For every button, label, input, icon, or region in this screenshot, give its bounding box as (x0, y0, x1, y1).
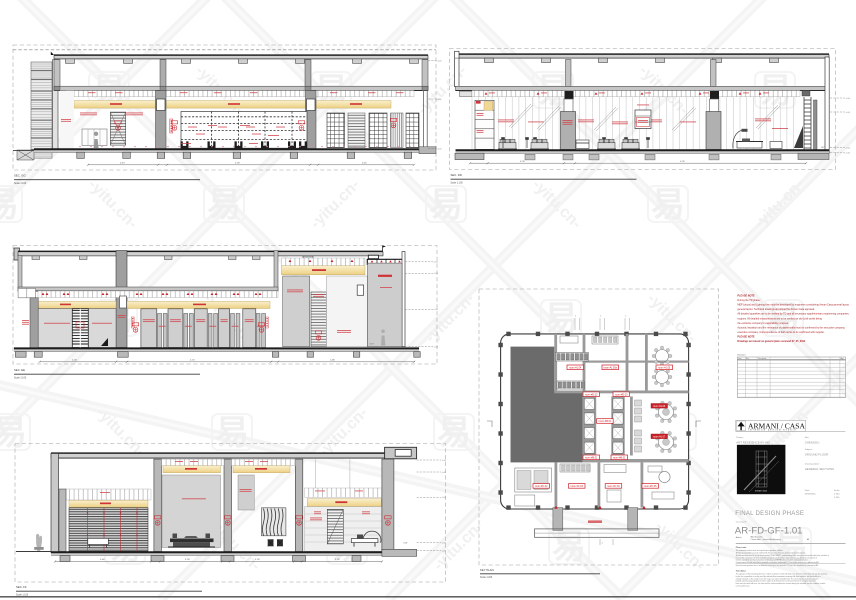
svg-text:Acoustic insulation and fire r: Acoustic insulation and fire resistance … (737, 326, 845, 329)
svg-text:+0.00: +0.00 (442, 460, 446, 462)
svg-text:+0.00: +0.00 (434, 262, 438, 264)
svg-text:1:100: 1:100 (834, 494, 840, 496)
svg-text:Scale 1:200: Scale 1:200 (480, 577, 493, 579)
svg-text:4.139: 4.139 (235, 163, 240, 165)
svg-text:4: 4 (625, 316, 626, 318)
svg-text:room #D.03: room #D.03 (615, 393, 628, 396)
svg-text:4.170: 4.170 (680, 161, 685, 163)
svg-text:4.170: 4.170 (255, 559, 260, 561)
svg-text:AR-FD-GF-1.01: AR-FD-GF-1.01 (735, 525, 803, 536)
svg-text:4: 4 (600, 316, 601, 318)
svg-text:易: 易 (544, 300, 578, 338)
svg-text:FINAL DESIGN PHASE: FINAL DESIGN PHASE (735, 510, 804, 517)
svg-text:During the TD phase:: During the TD phase: (737, 299, 760, 302)
svg-text:+0.00: +0.00 (437, 99, 441, 101)
svg-text:Scale 1:100: Scale 1:100 (14, 378, 27, 380)
svg-text:KEY PLAN: KEY PLAN (480, 568, 494, 572)
svg-text:room #1.05: room #1.05 (658, 366, 671, 369)
svg-text:05/09/2015: 05/09/2015 (805, 494, 817, 496)
svg-text:Scale 1:100: Scale 1:100 (14, 183, 27, 185)
svg-text:GROUND FLOOR: GROUND FLOOR (805, 452, 829, 456)
svg-text:4.100: 4.100 (100, 559, 105, 561)
svg-text:4.170: 4.170 (520, 161, 525, 163)
svg-text:易: 易 (0, 186, 19, 224)
svg-text:Date:: Date: (805, 489, 811, 492)
svg-text:PLEASE NOTE: PLEASE NOTE (737, 295, 755, 298)
svg-text:+0.00: +0.00 (437, 60, 441, 62)
svg-text:易: 易 (207, 186, 241, 224)
svg-text:1.330: 1.330 (330, 360, 335, 362)
svg-text:Translation: Translation (736, 570, 747, 573)
svg-text:1:200: 1:200 (834, 497, 840, 499)
svg-text:易: 易 (651, 186, 685, 224)
svg-text:room #C.02: room #C.02 (535, 485, 548, 488)
svg-text:SEC. GG: SEC. GG (14, 174, 26, 178)
svg-text:SEC. DD: SEC. DD (451, 173, 462, 177)
svg-text:4.170: 4.170 (335, 559, 340, 561)
svg-text:Scale:: Scale: (834, 490, 840, 492)
svg-text:engines. All detailed measurem: engines. All detailed measurements are t… (737, 317, 822, 320)
svg-text:App.: App. (841, 357, 845, 360)
svg-text:4.225: 4.225 (362, 163, 367, 165)
svg-text:易: 易 (215, 414, 249, 452)
svg-text:4.171: 4.171 (190, 360, 195, 362)
svg-text:Author:: Author: (736, 536, 743, 539)
svg-text:+0.00: +0.00 (442, 550, 446, 552)
svg-text:易: 易 (552, 528, 586, 566)
svg-text:+0.00: +0.00 (442, 497, 446, 499)
svg-text:Drawing N°: Drawing N° (736, 520, 747, 523)
svg-text:room #1.07: room #1.07 (653, 435, 666, 438)
svg-text:CHENGDU: CHENGDU (805, 440, 820, 444)
svg-text:+0.00: +0.00 (846, 153, 850, 155)
svg-text:executive company. Corresponde: executive company. Correspondence of bot… (737, 331, 825, 334)
svg-text:+0.00: +0.00 (846, 98, 850, 100)
svg-text:room #B.01: room #B.01 (585, 456, 598, 459)
svg-text:易: 易 (437, 414, 471, 452)
svg-text:+0.00: +0.00 (434, 309, 438, 311)
svg-text:room #C.03: room #C.03 (570, 485, 583, 488)
svg-text:+0.00: +0.00 (434, 347, 438, 349)
svg-text:Project:: Project: (736, 436, 744, 439)
svg-text:MEP (ducts) and Lighting Arm m: MEP (ducts) and Lighting Arm must be dev… (737, 304, 849, 307)
svg-text:Revision:: Revision: (737, 355, 746, 357)
svg-text:+0.00: +0.00 (442, 542, 446, 544)
svg-text:4.170: 4.170 (185, 559, 190, 561)
svg-text:Site:: Site: (805, 436, 810, 439)
svg-text:room #C.04: room #C.04 (607, 485, 620, 488)
svg-text:Rev.: Rev. (746, 358, 750, 360)
svg-text:易: 易 (0, 414, 27, 452)
svg-text:Description: Description (758, 357, 767, 360)
svg-text:4.134: 4.134 (72, 360, 77, 362)
svg-text:room #M.01: room #M.01 (599, 420, 612, 423)
svg-text:4.327: 4.327 (120, 163, 125, 165)
svg-text:room #1.05a: room #1.05a (603, 366, 617, 369)
svg-text:room #C.05: room #C.05 (644, 485, 657, 488)
svg-text:Drawing object:: Drawing object: (805, 463, 820, 466)
svg-text:Drawings are based on general: Drawings are based on general plans rece… (737, 340, 806, 343)
svg-text:+0.00: +0.00 (846, 147, 850, 149)
svg-text:ART RESIDENCE BY AIG: ART RESIDENCE BY AIG (736, 440, 770, 444)
svg-text:Scale 1:100: Scale 1:100 (451, 183, 464, 185)
svg-text:room #1.04: room #1.04 (569, 366, 582, 369)
svg-text:PLEASE NOTE: PLEASE NOTE (737, 336, 755, 339)
svg-text:room #1.06: room #1.06 (653, 405, 666, 408)
svg-text:Date: Date (738, 357, 742, 360)
svg-text:+0.00: +0.00 (434, 273, 438, 275)
svg-text:SEC. EE: SEC. EE (14, 368, 25, 372)
svg-text:+0.00: +0.00 (846, 112, 850, 114)
svg-text:Subject:: Subject: (805, 448, 813, 451)
svg-text:+0.00: +0.00 (442, 472, 446, 474)
svg-text:All detailed quantities are to: All detailed quantities are to be verifi… (737, 313, 849, 316)
svg-text:4: 4 (575, 316, 576, 318)
svg-text:GENERAL SECTIONS: GENERAL SECTIONS (805, 467, 834, 471)
svg-text:ARMANI CASA: ARMANI CASA (755, 490, 768, 493)
svg-text:Aldo Bozzolini: Aldo Bozzolini (751, 535, 763, 538)
svg-text:room #D.02: room #D.02 (585, 393, 598, 396)
svg-text:room #B.02: room #B.02 (613, 456, 626, 459)
svg-text:general layout. Technical draw: general layout. Technical drawings are i… (737, 308, 815, 311)
svg-text:SEC. FF: SEC. FF (16, 585, 27, 589)
svg-text:+0.00: +0.00 (437, 148, 441, 150)
svg-text:易: 易 (429, 186, 463, 224)
svg-text:the exclusive company's respon: the exclusive company's responsibility, … (737, 322, 789, 325)
svg-text:Chiara d'Atri - General Bookke: Chiara d'Atri - General Bookkeeping (751, 538, 781, 541)
svg-text:Please note: Please note (736, 546, 747, 549)
